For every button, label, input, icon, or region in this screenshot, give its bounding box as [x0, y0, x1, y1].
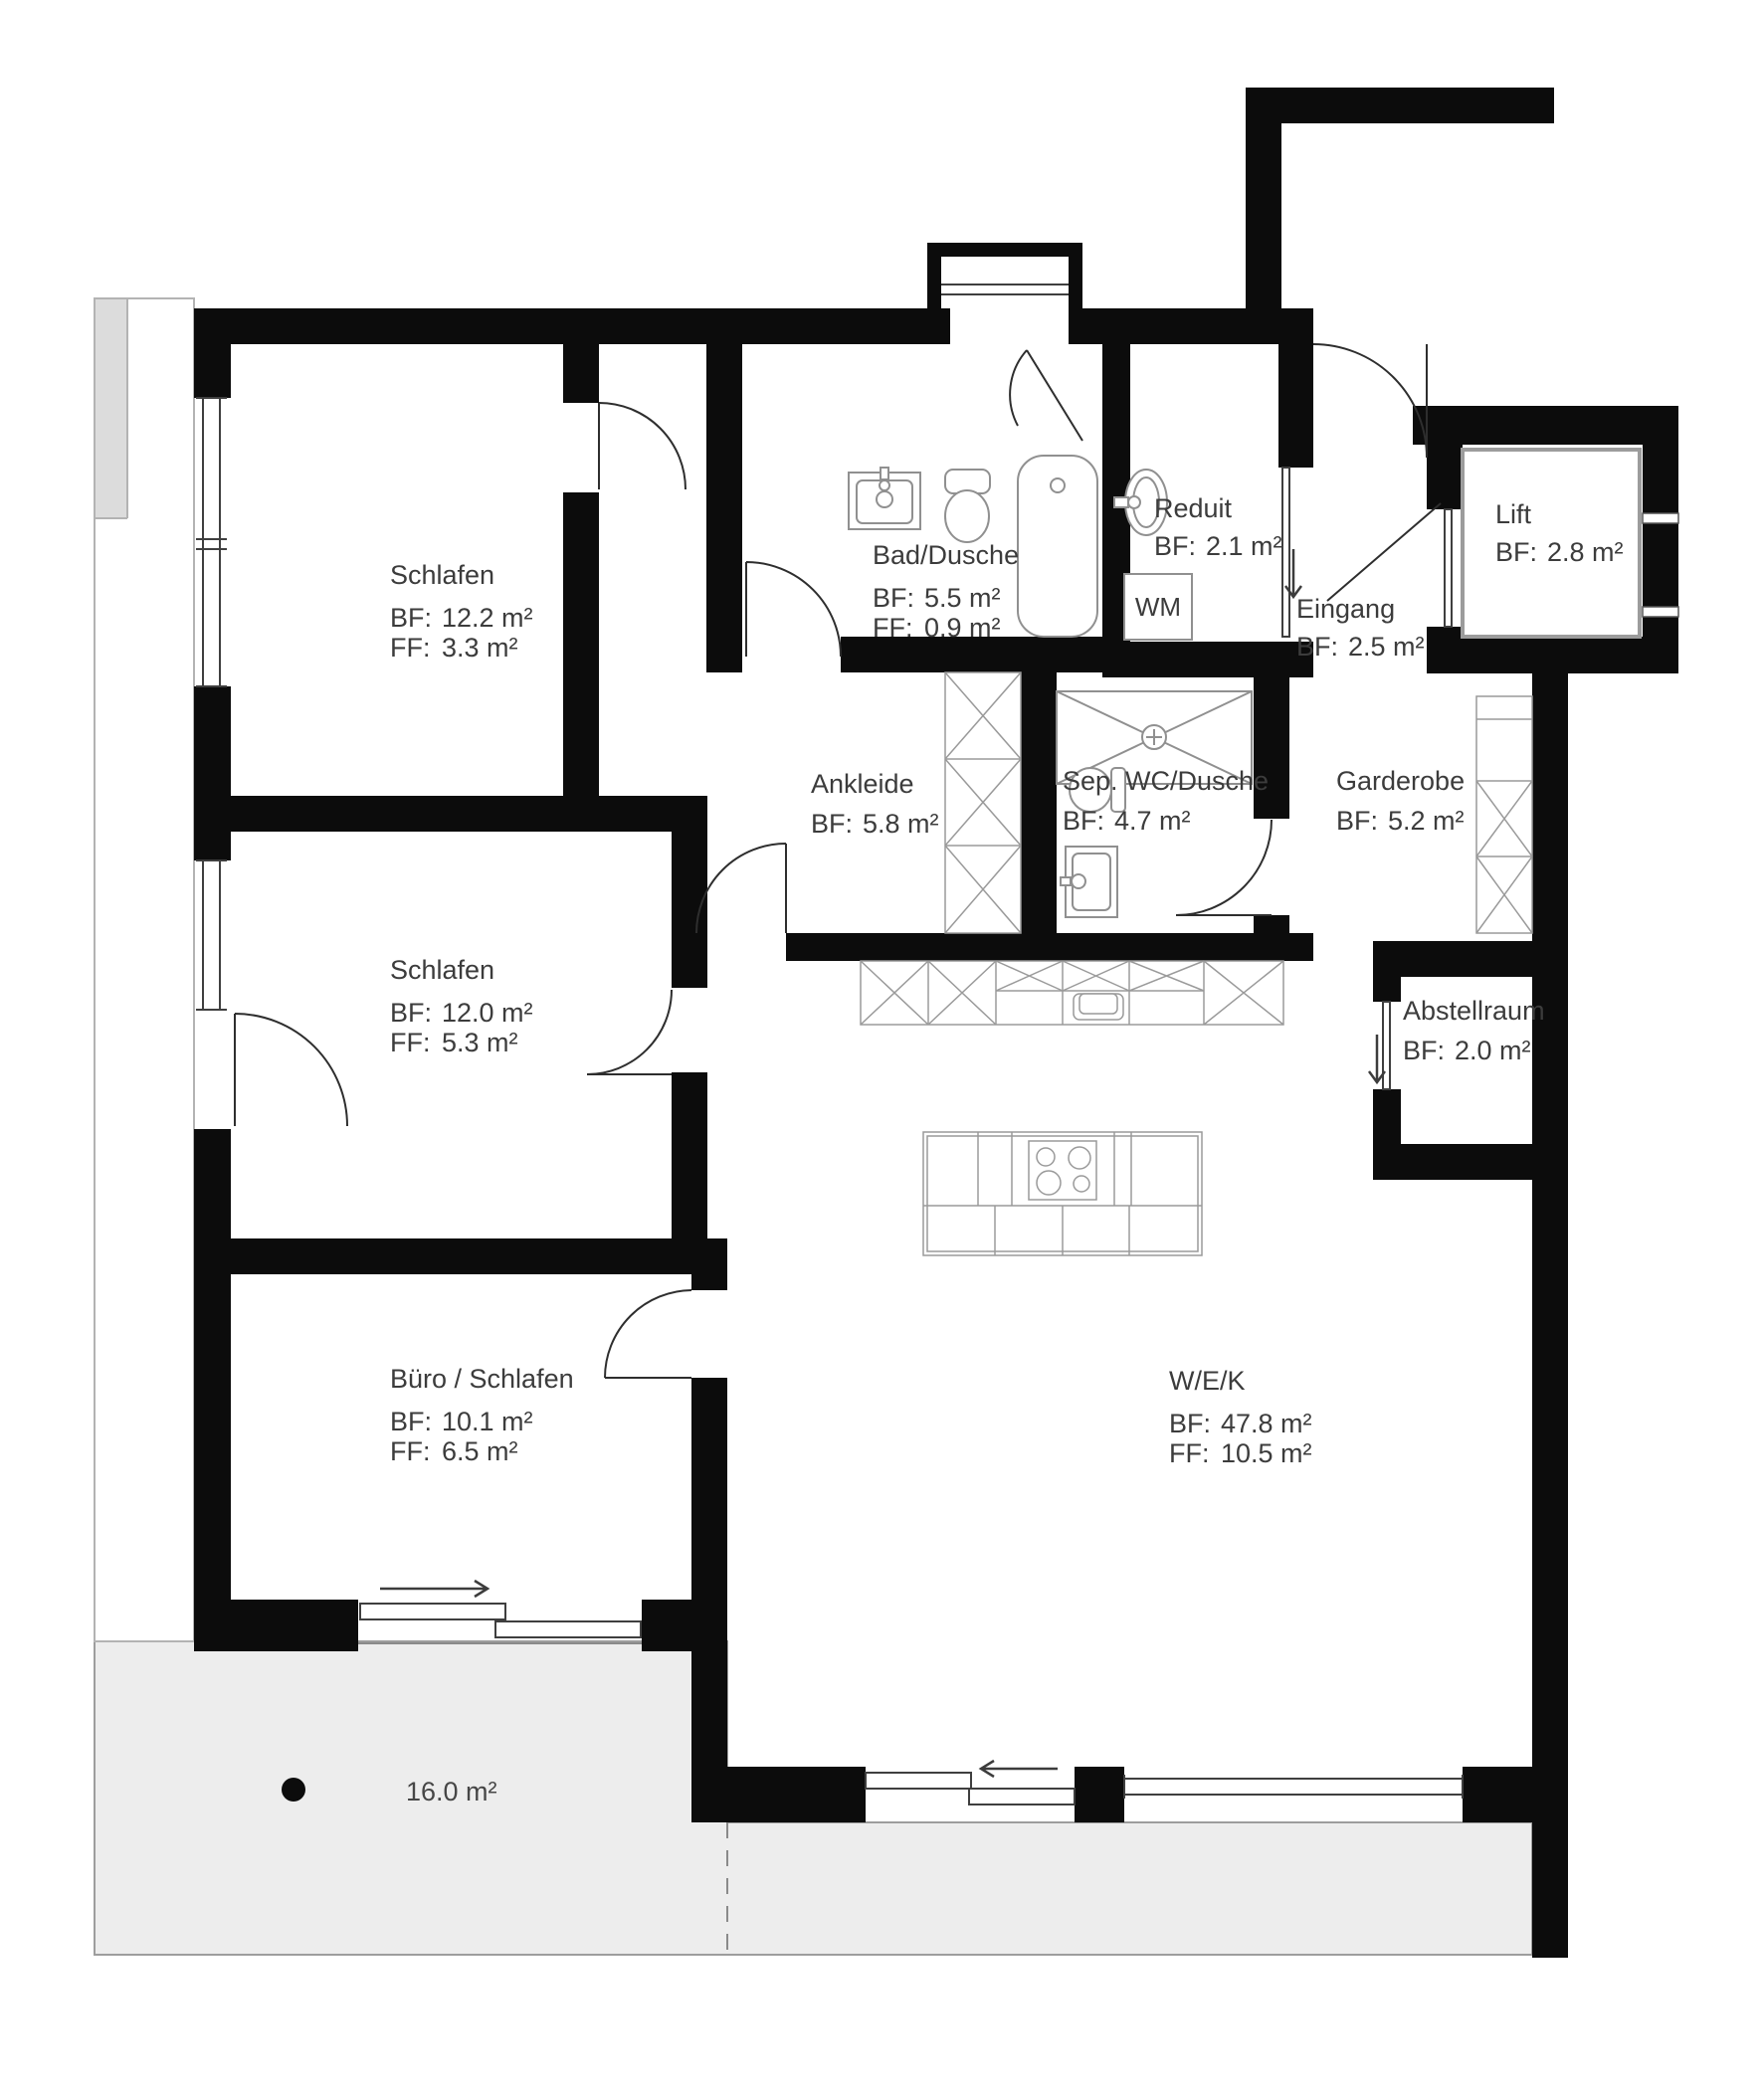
room-label-abstellraum: Abstellraum BF:2.0 m² — [1403, 996, 1545, 1065]
room-label-schlafen-2: Schlafen BF:12.0 m² FF:5.3 m² — [390, 955, 533, 1057]
schlafen1-door — [599, 403, 686, 489]
facade-strip — [95, 298, 194, 1641]
garderobe-wardrobe — [1476, 696, 1532, 933]
room-label-eingang: Eingang BF:2.5 m² — [1296, 594, 1425, 662]
washing-machine-label: WM — [1124, 574, 1192, 640]
kitchen-counter — [861, 961, 1283, 1025]
ankleide-door — [696, 844, 786, 933]
terrace-column — [282, 1778, 305, 1802]
room-label-schlafen-1: Schlafen BF:12.2 m² FF:3.3 m² — [390, 560, 533, 663]
room-label-bad-dusche: Bad/Dusche BF:5.5 m² FF:0.9 m² — [873, 540, 1019, 643]
slide-arrow-right-icon — [380, 1581, 488, 1597]
kitchen-island — [923, 1132, 1202, 1255]
room-label-ankleide: Ankleide BF:5.8 m² — [811, 769, 939, 839]
room-label-garderobe: Garderobe BF:5.2 m² — [1336, 766, 1465, 836]
loggia-door — [1010, 350, 1082, 441]
room-label-wek: W/E/K BF:47.8 m² FF:10.5 m² — [1169, 1366, 1312, 1468]
buero-door — [605, 1290, 691, 1378]
room-label-lift: Lift BF:2.8 m² — [1495, 499, 1624, 567]
room-label-sep-wc-dusche: Sep. WC/Dusche BF:4.7 m² — [1063, 766, 1269, 836]
room-label-reduit: Reduit BF:2.1 m² — [1154, 493, 1282, 561]
bad-door — [746, 562, 841, 657]
floor-plan: Schlafen BF:12.2 m² FF:3.3 m² Bad/Dusche… — [0, 0, 1764, 2090]
schlafen2-balcony-door — [235, 1014, 347, 1126]
entrance-door — [1313, 344, 1427, 458]
slide-arrow-left-icon — [981, 1761, 1058, 1777]
room-label-buero-schlafen: Büro / Schlafen BF:10.1 m² FF:6.5 m² — [390, 1364, 574, 1466]
schlafen2-door — [587, 990, 672, 1074]
terrace-area-label: 16.0 m² — [406, 1777, 497, 1807]
